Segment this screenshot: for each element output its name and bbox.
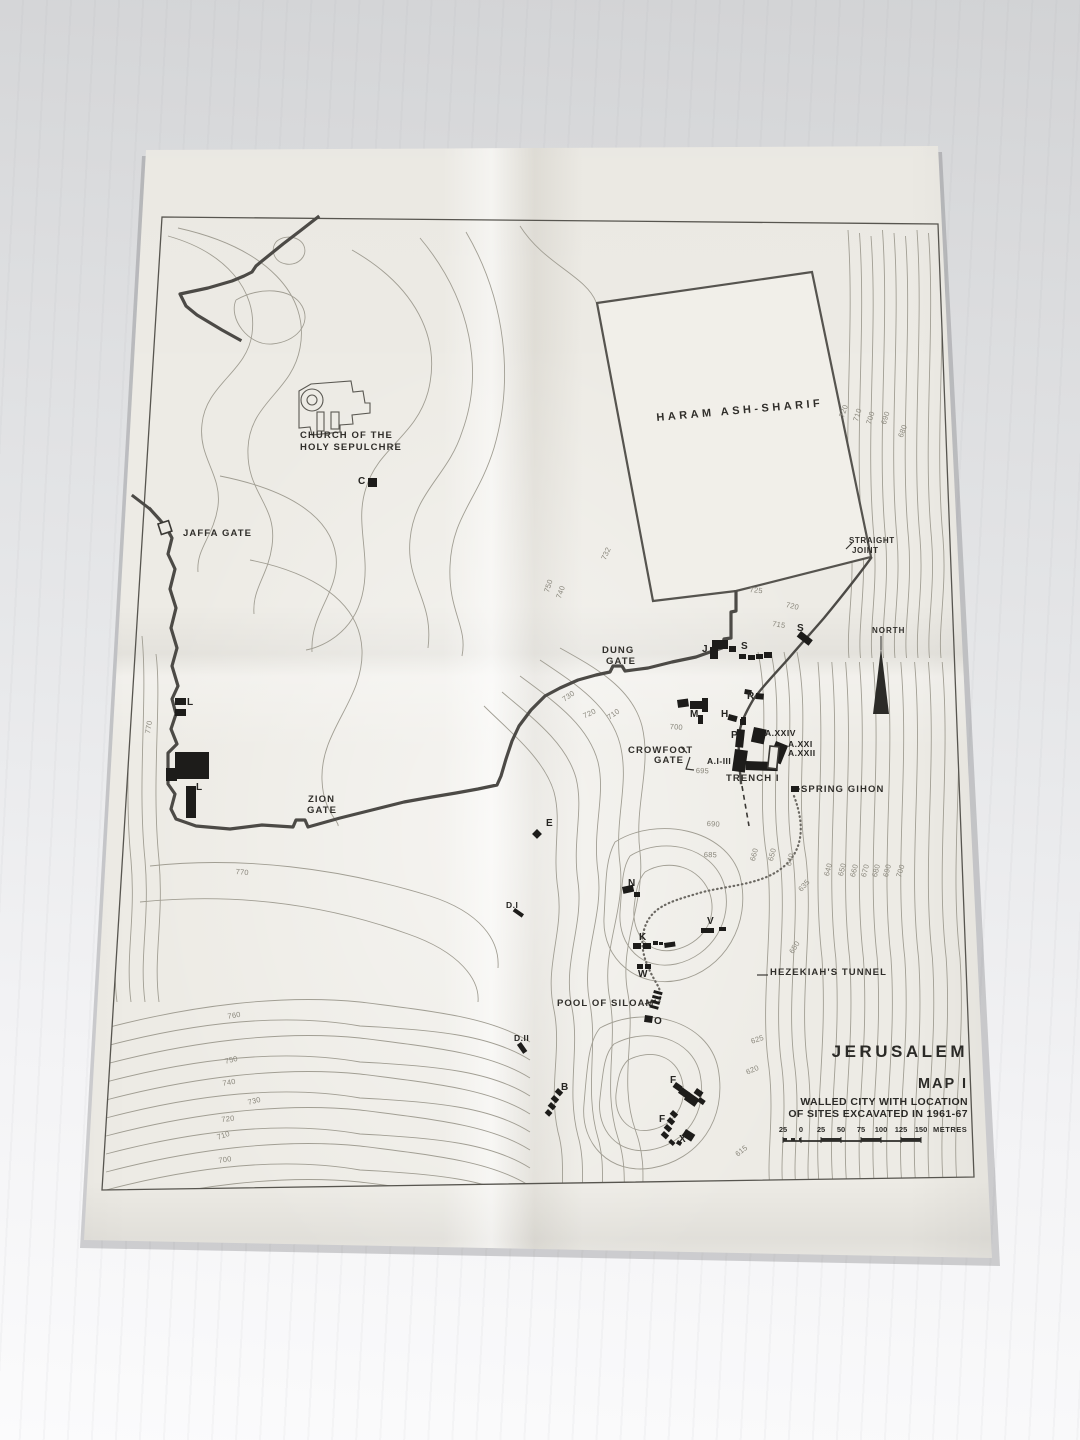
contour-elevation-label: 685 xyxy=(704,851,717,859)
site-label-m: M xyxy=(690,710,699,720)
pool-of-siloam: POOL OF SILOAM xyxy=(557,999,655,1009)
map-title-number: MAP I xyxy=(918,1076,968,1092)
spring-gihon: SPRING GIHON xyxy=(801,785,884,795)
site-label-o: O xyxy=(654,1017,662,1027)
north: NORTH xyxy=(872,627,905,635)
site-label-b: B xyxy=(561,1083,569,1093)
contour-elevation-label: 690 xyxy=(880,411,891,426)
scale-tick-label: 25 xyxy=(817,1126,825,1134)
map-subtitle-line2: OF SITES EXCAVATED IN 1961-67 xyxy=(788,1108,968,1120)
site-label-k: K xyxy=(639,933,647,943)
contour-elevation-label: 750 xyxy=(224,1055,239,1065)
site-label-f: F xyxy=(670,1076,677,1086)
photo-of-paper-map: JERUSALEM MAP I WALLED CITY WITH LOCATIO… xyxy=(0,0,1080,1440)
site-label-a.xxiv: A.XXIV xyxy=(765,729,796,738)
map-title-city: JERUSALEM xyxy=(832,1042,968,1062)
jaffa-gate: JAFFA GATE xyxy=(183,529,252,539)
haram-ash-sharif: HARAM ASH-SHARIF xyxy=(656,398,824,424)
site-label-j: J xyxy=(702,645,708,655)
map-labels-layer: JERUSALEM MAP I WALLED CITY WITH LOCATIO… xyxy=(0,0,1080,1440)
hezekiahs-tunnel: HEZEKIAH'S TUNNEL xyxy=(770,968,887,978)
contour-elevation-label: 720 xyxy=(582,707,597,719)
contour-elevation-label: 700 xyxy=(218,1155,232,1164)
contour-elevation-label: 720 xyxy=(838,404,850,419)
contour-elevation-label: 732 xyxy=(600,546,612,561)
contour-elevation-label: 760 xyxy=(227,1011,241,1021)
contour-elevation-label: 710 xyxy=(852,408,863,423)
contour-elevation-label: 710 xyxy=(216,1130,231,1141)
contour-elevation-label: 635 xyxy=(797,878,811,893)
site-label-l: L xyxy=(196,783,203,793)
site-label-c: C xyxy=(358,477,366,487)
scale-tick-label: 0 xyxy=(799,1126,803,1134)
site-label-s: S xyxy=(797,624,804,634)
site-label-n: N xyxy=(628,879,636,889)
site-label-s: S xyxy=(741,642,748,652)
contour-elevation-label: 700 xyxy=(865,411,876,426)
site-label-p: P xyxy=(731,731,738,741)
contour-elevation-label: 710 xyxy=(606,707,621,721)
contour-elevation-label: 770 xyxy=(235,868,249,877)
contour-elevation-label: 615 xyxy=(734,1144,749,1158)
straight-joint-1: STRAIGHT xyxy=(849,537,895,545)
contour-elevation-label: 740 xyxy=(555,585,567,600)
site-label-v: V xyxy=(707,917,714,927)
contour-elevation-label: 640 xyxy=(785,852,796,867)
contour-elevation-label: 730 xyxy=(561,689,576,703)
site-label-h: H xyxy=(721,710,729,720)
site-label-l: L xyxy=(187,698,194,708)
site-label-a.i-iii: A.I-III xyxy=(707,757,731,766)
contour-elevation-label: 680 xyxy=(897,424,909,439)
dung-gate-1: DUNG xyxy=(602,646,634,656)
scale-unit-label: METRES xyxy=(933,1126,967,1134)
scale-tick-label: 50 xyxy=(837,1126,845,1134)
contour-elevation-label: 750 xyxy=(543,579,554,594)
contour-elevation-label: 640 xyxy=(823,862,834,877)
contour-elevation-label: 730 xyxy=(247,1096,262,1106)
map-subtitle-line1: WALLED CITY WITH LOCATION xyxy=(800,1096,968,1108)
contour-elevation-label: 650 xyxy=(837,862,848,877)
zion-gate-1: ZION xyxy=(308,795,335,805)
site-label-r: R xyxy=(747,692,755,702)
contour-elevation-label: 770 xyxy=(144,720,154,734)
contour-elevation-label: 690 xyxy=(882,863,893,878)
scale-tick-label: 125 xyxy=(895,1126,908,1134)
church-of-the-holy-sepulchre-2: HOLY SEPULCHRE xyxy=(300,443,402,453)
zion-gate-2: GATE xyxy=(307,806,337,816)
site-label-w: W xyxy=(638,970,648,980)
scale-tick-label: 75 xyxy=(857,1126,865,1134)
scale-tick-label: 25 xyxy=(779,1126,787,1134)
scale-tick-label: 150 xyxy=(915,1126,928,1134)
crowfoot-gate-2: GATE xyxy=(654,756,684,766)
contour-elevation-label: 690 xyxy=(707,820,720,828)
contour-elevation-label: 695 xyxy=(696,767,709,775)
site-label-d.ii: D.II xyxy=(514,1034,529,1043)
contour-elevation-label: 650 xyxy=(788,940,801,955)
site-label-d.i: D.I xyxy=(506,901,518,910)
church-of-the-holy-sepulchre-1: CHURCH OF THE xyxy=(300,431,393,441)
site-label-f: F xyxy=(659,1115,666,1125)
site-label-e: E xyxy=(546,819,553,829)
contour-elevation-label: 620 xyxy=(745,1064,760,1076)
contour-elevation-label: 700 xyxy=(895,864,906,879)
site-label-x: X xyxy=(679,1135,686,1145)
contour-elevation-label: 625 xyxy=(750,1034,765,1045)
contour-elevation-label: 700 xyxy=(669,723,683,731)
scale-tick-label: 100 xyxy=(875,1126,888,1134)
trench-i: TRENCH I xyxy=(726,774,780,784)
contour-elevation-label: 725 xyxy=(749,586,763,595)
contour-elevation-label: 715 xyxy=(772,620,786,630)
contour-elevation-label: 720 xyxy=(221,1115,235,1124)
site-label-a.xxii: A.XXII xyxy=(788,749,816,758)
contour-elevation-label: 720 xyxy=(785,601,800,611)
contour-elevation-label: 660 xyxy=(749,847,760,862)
straight-joint-2: JOINT xyxy=(852,547,879,555)
contour-elevation-label: 650 xyxy=(767,847,778,862)
dung-gate-2: GATE xyxy=(606,657,636,667)
contour-elevation-label: 740 xyxy=(222,1078,236,1088)
